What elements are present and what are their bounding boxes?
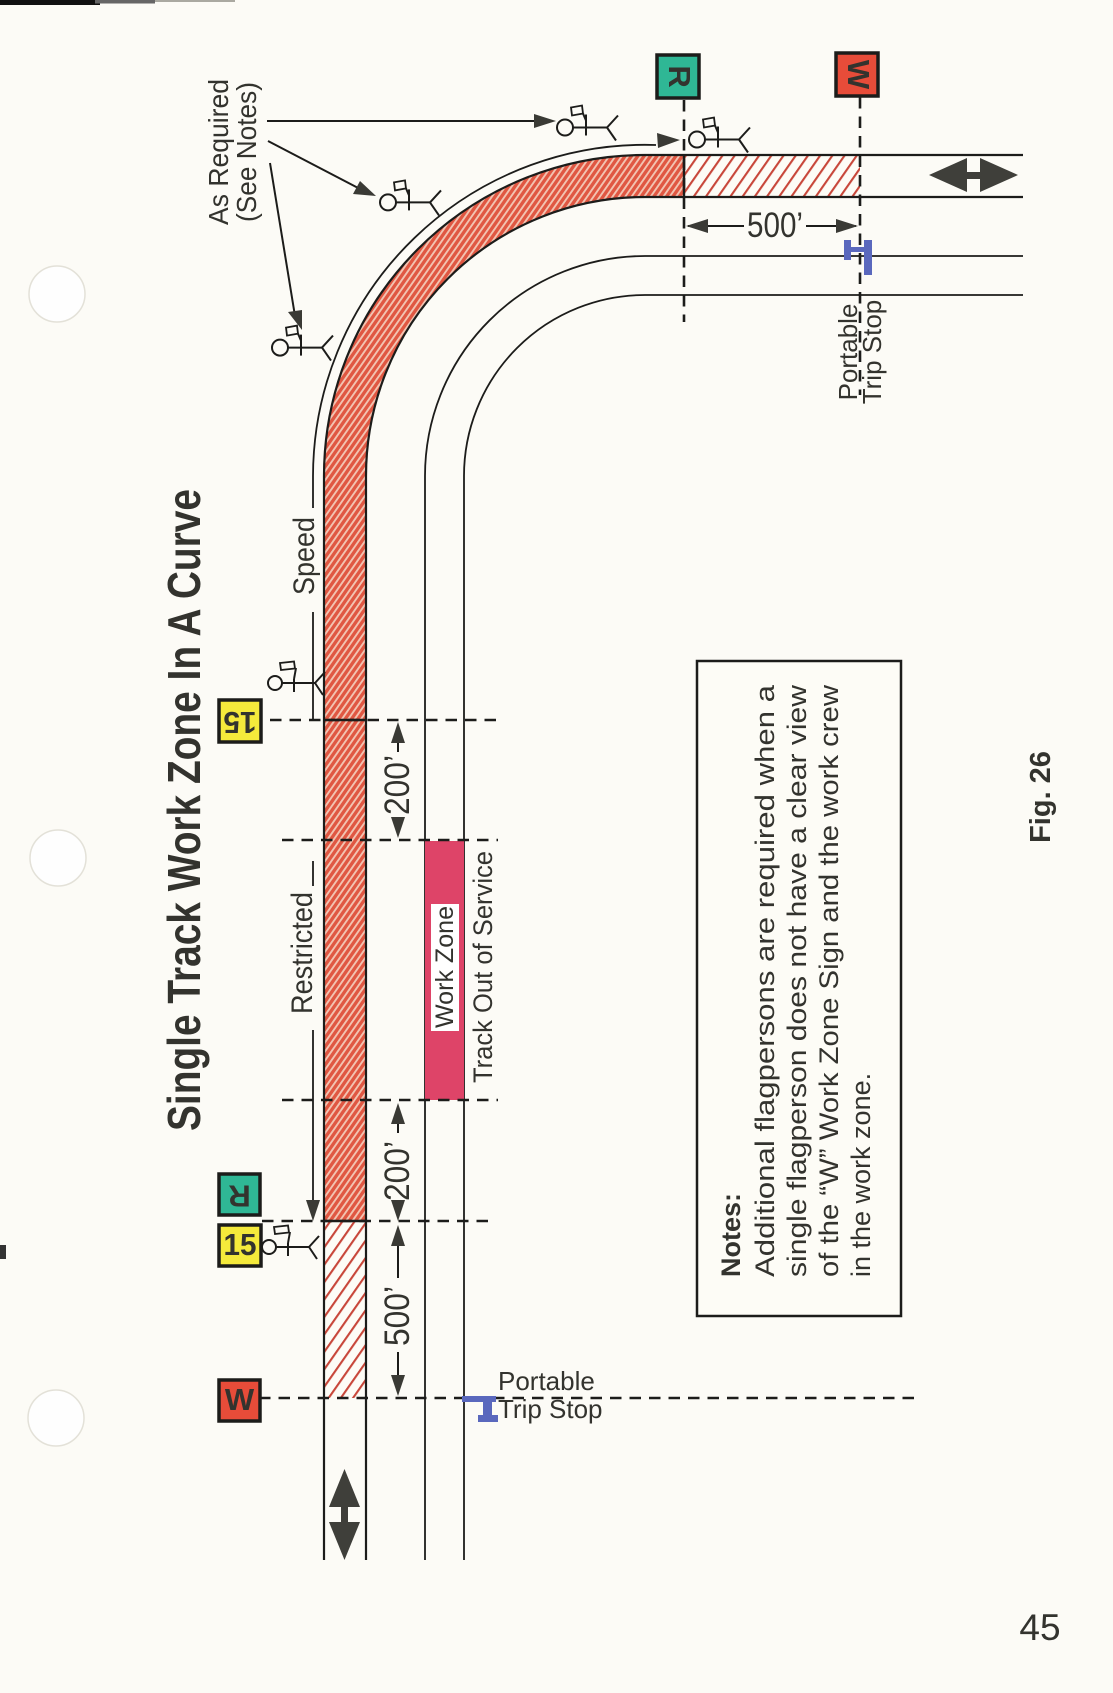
svg-text:Notes:: Notes: [716, 1193, 746, 1277]
svg-text:15: 15 [224, 1227, 257, 1262]
svg-text:Trip Stop: Trip Stop [498, 1394, 603, 1424]
svg-text:R: R [228, 1179, 250, 1214]
svg-text:Track Out of Service: Track Out of Service [468, 851, 498, 1083]
svg-text:500’: 500’ [747, 206, 803, 245]
svg-text:Work Zone: Work Zone [431, 906, 459, 1028]
svg-text:Portable: Portable [498, 1366, 595, 1396]
svg-text:Additional flagpersons are req: Additional flagpersons are required when… [750, 684, 780, 1277]
svg-text:Trip Stop: Trip Stop [857, 300, 887, 405]
svg-text:of the “W” Work Zone Sign and: of the “W” Work Zone Sign and the work c… [814, 684, 844, 1277]
svg-text:Restricted: Restricted [286, 892, 319, 1014]
svg-text:W: W [841, 60, 876, 90]
svg-text:500’: 500’ [378, 1286, 417, 1346]
svg-text:As Required: As Required [203, 79, 234, 225]
svg-text:45: 45 [1019, 1607, 1060, 1648]
svg-text:R: R [662, 65, 697, 87]
svg-text:Fig. 26: Fig. 26 [1025, 751, 1057, 843]
svg-text:15: 15 [224, 705, 257, 740]
svg-text:200’: 200’ [378, 755, 417, 815]
svg-text:single flagperson does not hav: single flagperson does not have a clear … [782, 684, 812, 1277]
svg-text:200’: 200’ [378, 1141, 417, 1201]
svg-text:Single Track Work Zone In A Cu: Single Track Work Zone In A Curve [158, 489, 210, 1131]
svg-text:in the work zone.: in the work zone. [846, 1073, 876, 1277]
svg-text:(See Notes): (See Notes) [231, 82, 262, 222]
svg-text:Speed: Speed [288, 517, 321, 595]
svg-text:W: W [225, 1382, 255, 1417]
